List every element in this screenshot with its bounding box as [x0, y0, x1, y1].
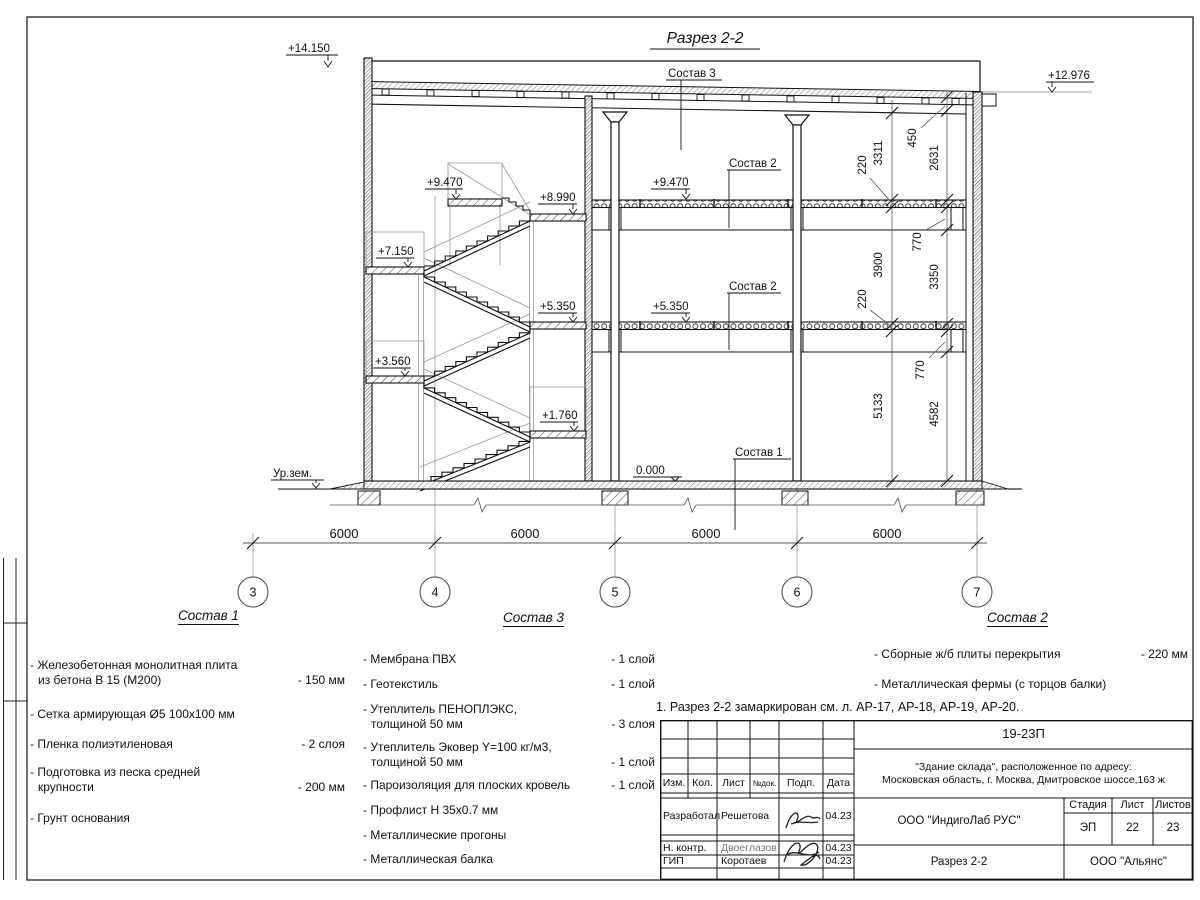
drawing-title-text: Разрез 2-2 [667, 30, 744, 47]
stamp-date-1: 04.23 [823, 804, 854, 828]
stamp-name-3: Коротаев [721, 855, 779, 868]
ground [278, 481, 1022, 512]
stamp-drawing-name: Разрез 2-2 [854, 845, 1064, 880]
legend-3-item: - Металлические прогоны [363, 828, 655, 843]
dim-span-1: 6000 [330, 526, 359, 541]
stamp-role-2: Н. контр. [663, 841, 717, 855]
legend-3-item: - Профлист Н 35х0.7 мм [363, 803, 655, 818]
callout-sostav2-lower: Состав 2 [729, 281, 777, 293]
stamp-stage: ЭП [1064, 813, 1112, 845]
axis-bubble-4: 4 [432, 586, 439, 600]
elev-9470-stair: +9.470 [427, 177, 463, 189]
stamp-role-3: ГИП [663, 855, 717, 868]
roof [365, 61, 1092, 114]
columns [603, 112, 809, 481]
legend-3-item: - Мембрана ПВХ - 1 слой [363, 652, 655, 667]
elev-5350-stair: +5.350 [540, 301, 576, 313]
legend-1-item: - Подготовка из песка среднейкрупности -… [30, 765, 345, 795]
stamp-h-list: Лист [717, 774, 750, 793]
elev-3560: +3.560 [375, 356, 411, 368]
stamp-sheets: 23 [1153, 813, 1193, 845]
stamp-stage-label: Стадия [1064, 798, 1112, 813]
stamp-org: ООО "ИндигоЛаб РУС" [854, 798, 1064, 845]
axis-bubble-7: 7 [974, 586, 981, 600]
dim-4582: 4582 [929, 401, 941, 427]
stamp-name-1: Решетова [721, 804, 779, 828]
title-block: 19-23П "Здание склада", расположенное по… [660, 720, 1193, 880]
dim-3350: 3350 [929, 264, 941, 290]
stamp-role-1: Разработал [663, 804, 717, 828]
legend-3-item: - Пароизоляция для плоских кровель - 1 с… [363, 778, 655, 793]
legend-1-item: - Железобетонная монолитная плитаиз бето… [30, 658, 345, 688]
dim-770-a: 770 [912, 232, 924, 251]
stamp-doc-number: 19-23П [854, 720, 1193, 749]
walls [364, 58, 982, 481]
elev-ground: Ур.зем. [273, 468, 312, 480]
stamp-sheet-label: Лист [1112, 798, 1153, 813]
elev-9470-floor: +9.470 [653, 177, 689, 189]
callout-sostav3: Состав 3 [668, 68, 716, 80]
legend-2-item: - Сборные ж/б плиты перекрытия - 220 мм [874, 647, 1188, 662]
axis-bubble-5: 5 [612, 586, 619, 600]
elev-7150: +7.150 [378, 246, 414, 258]
note-text: 1. Разрез 2-2 замаркирован см. л. АР-17,… [656, 700, 1019, 714]
legend-sostav-1: Состав 1 - Железобетонная монолитная пли… [30, 600, 345, 840]
stamp-date-2: 04.23 [823, 841, 854, 855]
stamp-date-3: 04.23 [823, 855, 854, 868]
drawing-title: Разрез 2-2 [650, 30, 760, 49]
dim-220-a: 220 [857, 155, 869, 174]
elev-5350-floor: +5.350 [653, 301, 689, 313]
legend-1-item: - Сетка армирующая Ø5 100х100 мм [30, 707, 345, 722]
stamp-h-sign: Подп. [779, 774, 823, 793]
stamp-h-date: Дата [823, 774, 854, 793]
legend-3-item: - Металлическая балка [363, 852, 655, 867]
elev-1760: +1.760 [542, 410, 578, 422]
stamp-sheets-label: Листов [1153, 798, 1193, 813]
dim-770-b: 770 [915, 360, 927, 379]
legend-1-item: - Пленка полиэтиленовая - 2 слоя [30, 737, 345, 752]
dim-5133: 5133 [873, 393, 885, 419]
stamp-sheet: 22 [1112, 813, 1153, 845]
legend-1-title: Состав 1 [178, 608, 239, 625]
legend-sostav-3: Состав 3 - Мембрана ПВХ - 1 слой - Геоте… [363, 600, 655, 880]
stairs [366, 163, 586, 491]
stamp-h-doc: №док. [750, 774, 779, 793]
dim-chains-vertical: 220 3311 220 3900 5133 450 2631 770 3350… [857, 91, 953, 487]
legend-2-item: - Металлическая фермы (с торцов балки) [874, 677, 1188, 692]
stamp-h-izm: Изм. [660, 774, 688, 793]
elev-zero: 0.000 [636, 465, 665, 477]
elev-roof-left: +14.150 [288, 43, 330, 55]
dim-3311: 3311 [873, 141, 885, 166]
legend-3-item: - Утеплитель Эковер Y=100 кг/м3,толщиной… [363, 740, 655, 770]
floor-slabs [592, 199, 966, 352]
dim-3900: 3900 [873, 252, 885, 278]
signature-icon [784, 813, 820, 865]
dim-span-4: 6000 [873, 526, 902, 541]
axis-bubble-3: 3 [250, 586, 257, 600]
dim-450: 450 [907, 128, 919, 147]
elev-roof-right: +12.976 [1048, 70, 1090, 82]
stamp-contractor: ООО "Альянс" [1064, 845, 1193, 880]
stamp-h-kol: Кол. [688, 774, 717, 793]
dim-2631: 2631 [929, 145, 941, 171]
dim-span-3: 6000 [692, 526, 721, 541]
legend-sostav-2: Состав 2 - Сборные ж/б плиты перекрытия … [874, 600, 1188, 710]
legend-3-item: - Утеплитель ПЕНОПЛЭКС,толщиной 50 мм - … [363, 702, 655, 732]
stamp-name-2: Двоеглазов [721, 841, 779, 855]
legend-3-title: Состав 3 [503, 610, 564, 627]
callout-sostav2-upper: Состав 2 [729, 158, 777, 170]
axis-bubble-6: 6 [794, 586, 801, 600]
stamp-object: "Здание склада", расположенное по адресу… [854, 749, 1193, 798]
legend-2-title: Состав 2 [987, 610, 1048, 627]
dim-220-b: 220 [857, 289, 869, 308]
callout-sostav1: Состав 1 [735, 447, 783, 459]
elev-8990: +8.990 [540, 192, 576, 204]
dim-span-2: 6000 [511, 526, 540, 541]
callouts: Состав 3 Состав 2 Состав 2 Состав 1 [666, 68, 791, 530]
legend-1-item: - Грунт основания [30, 811, 345, 826]
legend-3-item: - Геотекстиль - 1 слой [363, 677, 655, 692]
